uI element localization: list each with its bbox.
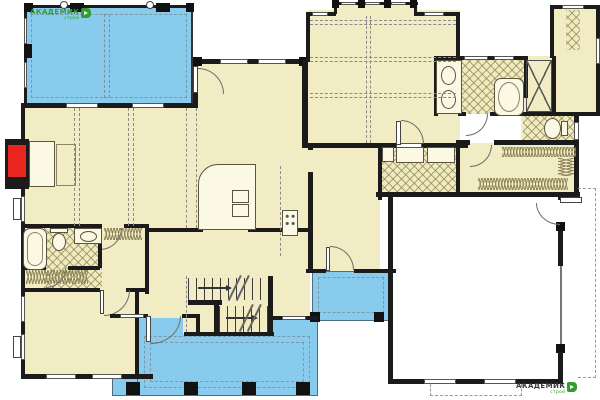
brand-name: АКАДЕМИК xyxy=(516,382,565,390)
window xyxy=(21,334,25,360)
shower-icon xyxy=(526,60,552,112)
brand-mark-icon xyxy=(567,382,577,392)
vanity-sink-icon xyxy=(80,231,97,242)
closet-rod-hanging-clothes xyxy=(478,178,568,190)
wall xyxy=(184,332,274,336)
window xyxy=(258,59,286,64)
bay-post xyxy=(358,0,365,8)
brand-name: АКАДЕМИК xyxy=(30,8,79,16)
wall xyxy=(308,143,313,150)
window xyxy=(120,314,144,318)
garage-right-thin-wall xyxy=(560,266,562,346)
ceiling-dashed-line xyxy=(74,108,76,226)
range-icon xyxy=(282,210,298,236)
floor-plan: АКАДЕМИК строй АКАДЕМИК строй xyxy=(0,0,600,400)
brand-mark-icon xyxy=(81,8,91,18)
toilet-bowl-icon xyxy=(52,233,66,251)
stoop-inset-dashed-line xyxy=(318,277,384,313)
ceiling-dashed-line xyxy=(310,61,456,63)
wall xyxy=(21,103,195,108)
stair-arrow xyxy=(226,317,252,319)
stair-arrow-head-icon xyxy=(226,285,232,291)
porch-post xyxy=(184,382,198,395)
driveway-dashed-outline xyxy=(578,188,596,378)
closet-rod-hanging-clothes xyxy=(104,228,142,240)
stair-arrow xyxy=(198,287,226,289)
toilet-bowl-icon xyxy=(544,118,561,139)
toilet-tank-icon xyxy=(561,121,568,136)
wall xyxy=(110,314,120,318)
porch-post xyxy=(242,382,256,395)
wall xyxy=(306,269,326,273)
wall xyxy=(196,314,200,334)
window xyxy=(21,196,25,222)
ceiling-dashed-line xyxy=(366,16,368,143)
ceiling-dashed-line xyxy=(133,108,135,226)
deck-post xyxy=(156,3,170,12)
wall xyxy=(196,59,306,64)
brand-subname: строй xyxy=(64,16,79,21)
ceiling-dashed-line xyxy=(310,57,456,59)
window xyxy=(92,374,122,379)
ceiling-dashed-line xyxy=(79,108,81,226)
wall xyxy=(302,59,308,147)
deck-post xyxy=(186,3,194,12)
wall xyxy=(552,56,556,114)
oval-tub-icon xyxy=(498,82,520,112)
stair-dashed-rail xyxy=(186,276,188,332)
wall xyxy=(456,12,460,60)
ceiling-dashed-line xyxy=(310,93,456,95)
window-sill xyxy=(13,336,21,358)
washer-icon xyxy=(396,147,424,163)
window xyxy=(391,2,406,5)
window xyxy=(562,5,584,9)
bay-post xyxy=(384,0,391,8)
laundry-counter xyxy=(382,147,394,162)
closet-rod-hanging-clothes xyxy=(558,158,574,176)
wall xyxy=(558,226,563,266)
wall xyxy=(193,92,198,108)
ceiling-dashed-line xyxy=(310,97,456,99)
porch-post xyxy=(126,382,140,395)
window xyxy=(574,122,579,140)
wall xyxy=(145,224,149,294)
window xyxy=(424,12,444,16)
wall xyxy=(145,228,203,232)
window xyxy=(66,103,98,108)
brand-subname: строй xyxy=(550,390,565,395)
bathtub-inner-line xyxy=(27,232,43,266)
window xyxy=(132,103,164,108)
bay-post xyxy=(332,0,339,8)
counter-dashed-line xyxy=(280,166,282,256)
porch-inset-dashed-line xyxy=(150,342,304,382)
window xyxy=(464,56,488,60)
vanity-sink-icon xyxy=(441,66,456,85)
deck-post xyxy=(24,44,32,58)
hearth xyxy=(29,141,55,187)
wall xyxy=(135,292,139,378)
window xyxy=(341,2,356,5)
ceiling-dashed-line xyxy=(128,108,130,226)
window xyxy=(220,59,248,64)
wall xyxy=(456,140,460,196)
closet-rod-hanging-clothes xyxy=(502,147,576,157)
window xyxy=(21,296,25,322)
wall xyxy=(376,192,580,197)
wall xyxy=(388,192,393,384)
wall-post xyxy=(193,57,202,66)
deck-divider-dashed xyxy=(104,14,106,98)
brand-logo-bottom-right: АКАДЕМИК строй xyxy=(516,382,577,395)
window-sill xyxy=(13,198,21,220)
wall xyxy=(354,269,396,273)
opening-header-dashed-line xyxy=(196,108,198,228)
fireplace-icon xyxy=(8,145,26,177)
wall xyxy=(248,228,310,232)
door-swing-arc xyxy=(466,114,488,136)
ceiling-dashed-line xyxy=(310,20,456,22)
linen-closet-tile xyxy=(566,10,580,50)
ceiling-dashed-line xyxy=(310,24,456,26)
window xyxy=(365,2,380,5)
porch-post xyxy=(296,382,310,395)
garage-apron-dashed xyxy=(430,384,522,396)
brand-logo-top-left: АКАДЕМИК строй xyxy=(30,8,91,21)
island-sink-basin-icon xyxy=(232,190,249,203)
dryer-icon xyxy=(427,147,455,163)
window xyxy=(24,18,27,44)
window xyxy=(596,38,600,64)
garage xyxy=(390,195,562,381)
closet-rod-hanging-clothes xyxy=(26,270,88,284)
opening-header-dashed-line xyxy=(186,108,188,228)
stoop-post xyxy=(374,312,384,322)
window xyxy=(24,62,27,88)
wall xyxy=(308,172,313,273)
wall xyxy=(494,140,578,145)
wall xyxy=(268,276,273,336)
fireplace-surround-line xyxy=(56,144,76,186)
window xyxy=(282,316,306,320)
window xyxy=(46,374,76,379)
window xyxy=(312,12,328,16)
bay-post xyxy=(410,0,417,8)
ceiling-dashed-line xyxy=(370,16,372,143)
deck-divider-dashed xyxy=(109,14,111,98)
wall xyxy=(21,288,100,292)
deck-symbol-circle-icon xyxy=(146,1,154,9)
wall xyxy=(21,374,153,379)
window xyxy=(494,56,514,60)
wall xyxy=(550,5,554,58)
island-sink-basin-icon xyxy=(232,204,249,217)
